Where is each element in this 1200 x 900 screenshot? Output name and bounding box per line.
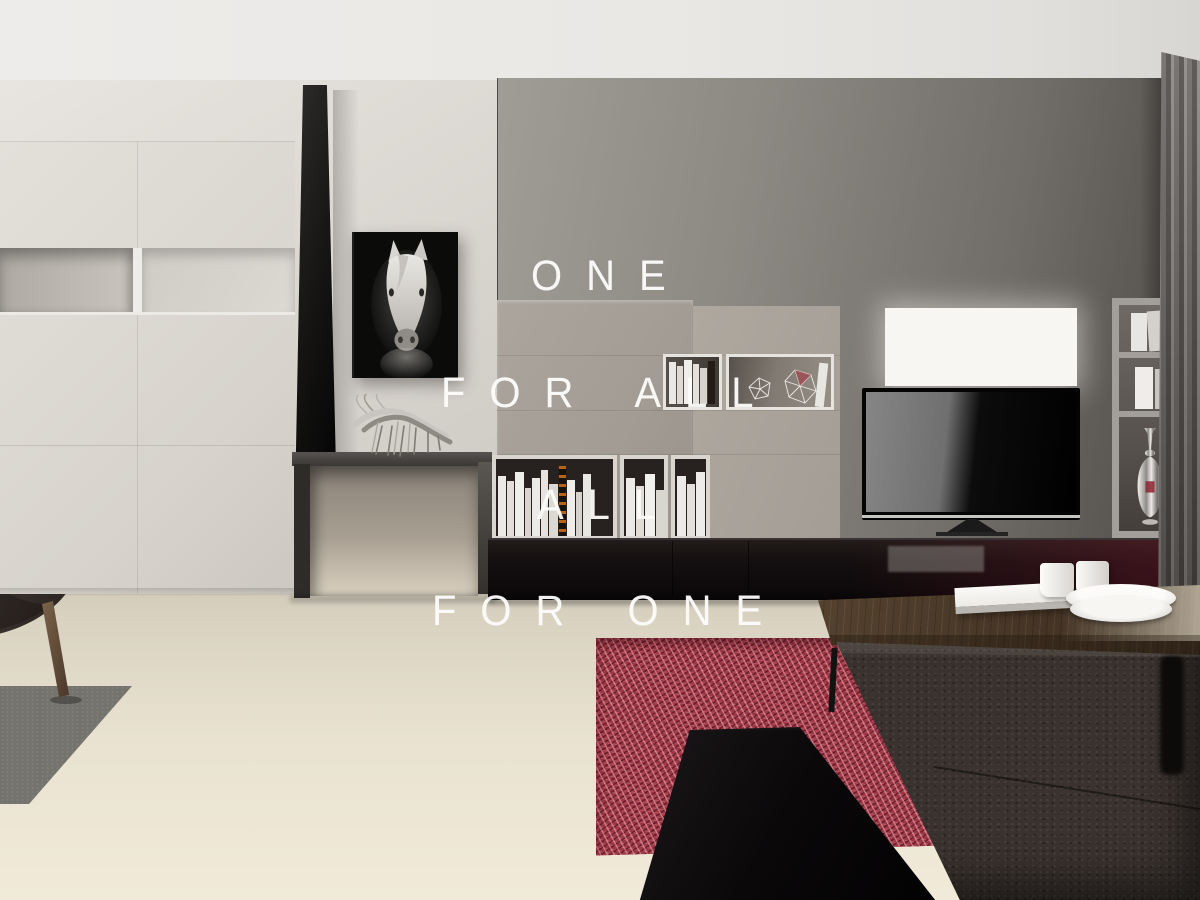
overlay-line-1: ONE (531, 255, 690, 297)
cabinet-seam (0, 445, 295, 446)
white-plate (1070, 596, 1172, 622)
base-cabinet-panel-reflection (888, 546, 984, 572)
tv-screen (866, 392, 1076, 512)
backlit-white-panel (885, 308, 1077, 386)
overlay-line-4: FOR ONE (432, 590, 786, 632)
curtain (1158, 52, 1200, 644)
horse-head-illustration (354, 232, 460, 378)
console-interior (310, 466, 478, 596)
overlay-line-3: ALL (537, 484, 680, 526)
tv-bottom-bar (862, 515, 1080, 518)
niche-divider (133, 248, 142, 312)
cabinet-kick-shadow (0, 588, 295, 596)
cabinet-seam (137, 142, 138, 594)
cabinet-seam (0, 141, 295, 142)
tv-frame (862, 388, 1080, 520)
tv-stand-base (936, 532, 1008, 536)
white-cabinet-wall (0, 142, 295, 594)
niche-bottom-lip (0, 312, 295, 315)
living-room-render: ONE FOR ALL ALL FOR ONE (0, 0, 1200, 900)
sofa-seam (934, 766, 1200, 810)
wall-unit-upper-right (693, 306, 840, 540)
console-leg-left (294, 464, 310, 598)
horse-portrait-artwork (352, 232, 458, 378)
open-wall-niche-right (142, 248, 295, 312)
open-wall-niche-left (0, 248, 133, 312)
overlay-line-2: FOR ALL (441, 372, 778, 414)
sofa-cushion-gap (1160, 655, 1184, 775)
